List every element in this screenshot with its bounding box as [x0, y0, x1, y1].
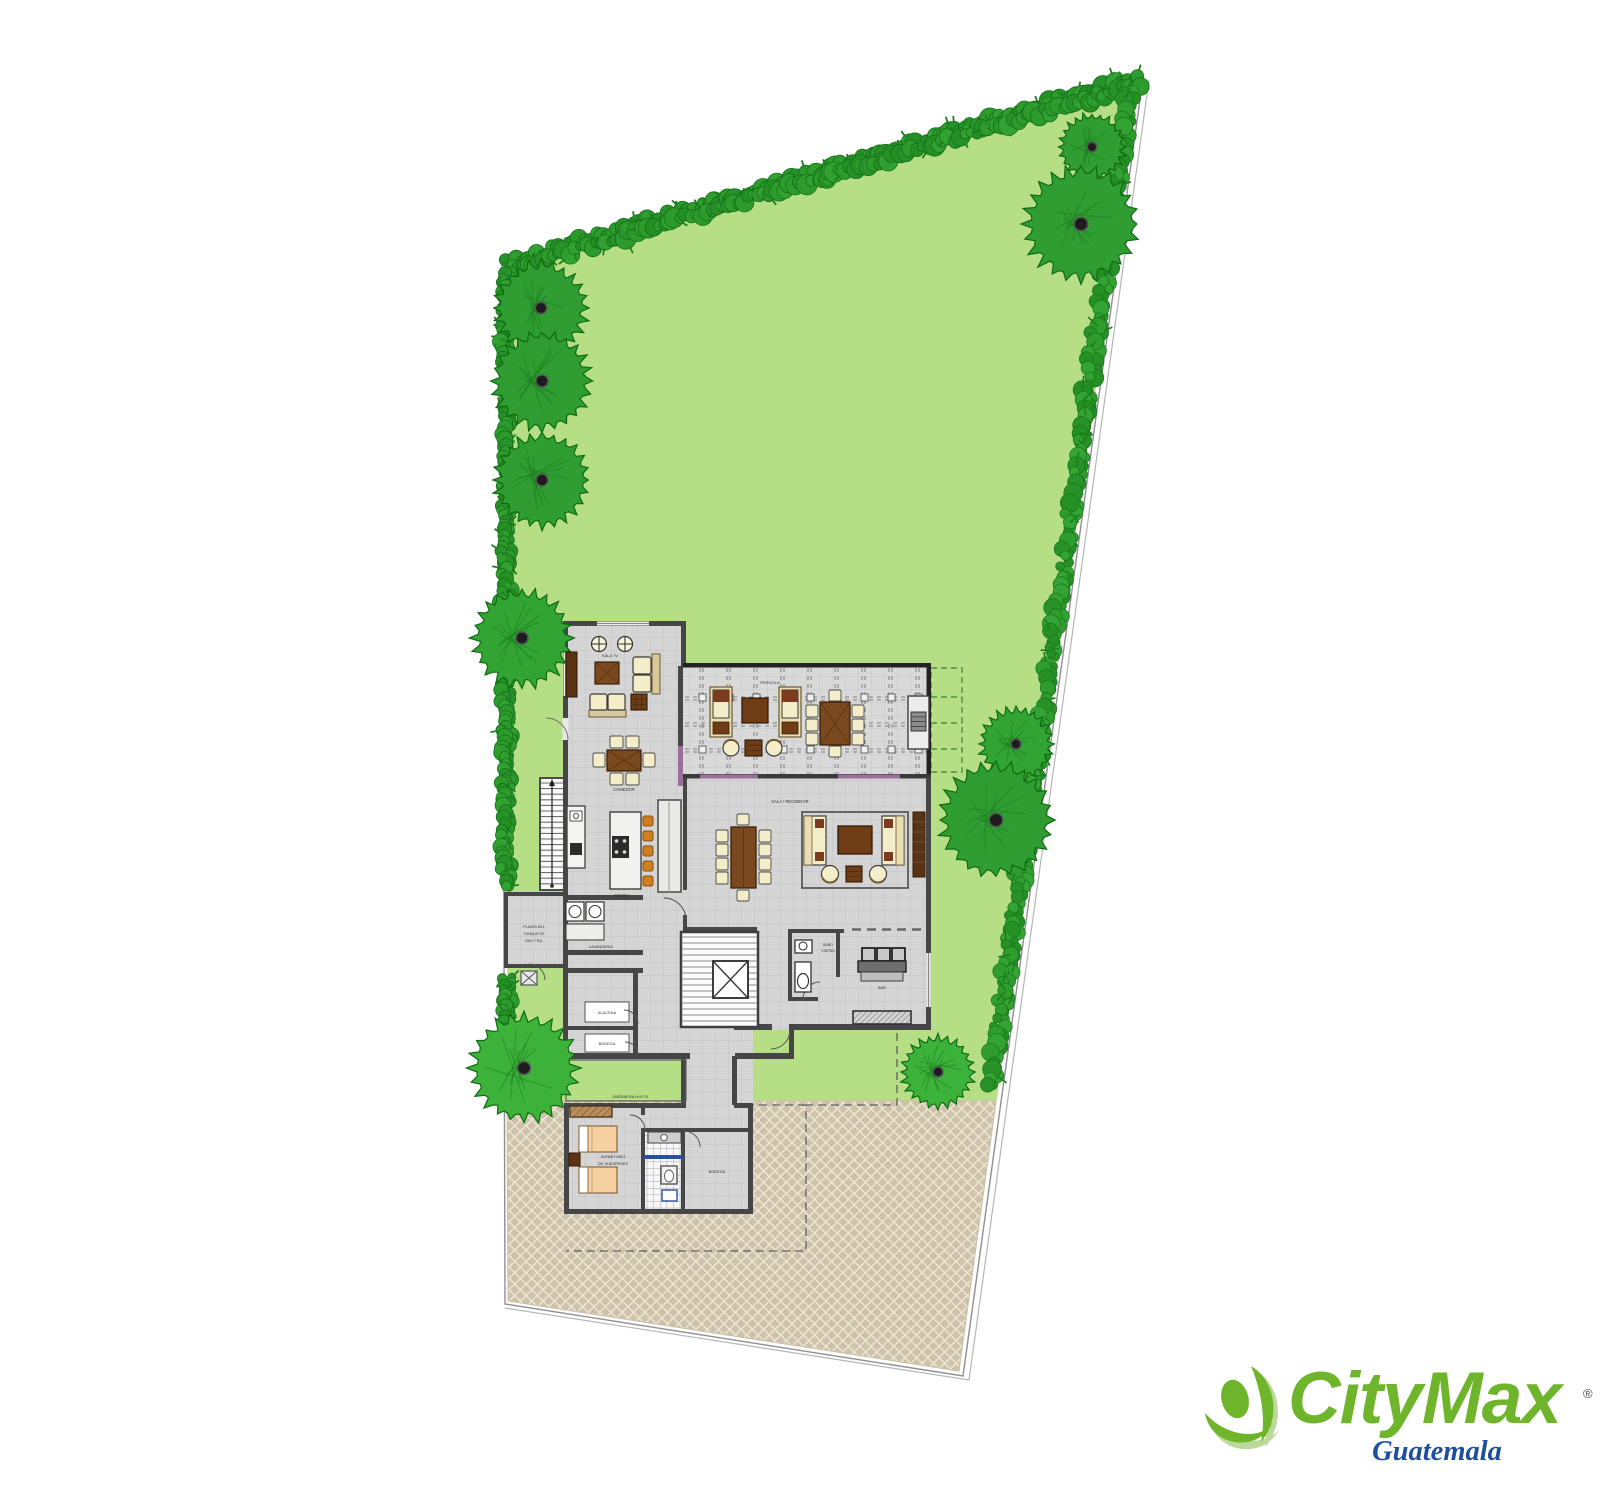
svg-text:SALA / RECIBIDOR: SALA / RECIBIDOR — [771, 799, 808, 804]
svg-text:Guatemala: Guatemala — [1372, 1436, 1502, 1467]
svg-text:JARDINERA H=0.75: JARDINERA H=0.75 — [612, 1094, 648, 1099]
svg-text:VISITAS: VISITAS — [821, 949, 835, 953]
svg-text:CityMax: CityMax — [1288, 1358, 1565, 1439]
svg-text:®: ® — [1583, 1386, 1593, 1401]
svg-text:DE HUESPEDES: DE HUESPEDES — [598, 1162, 628, 1166]
svg-text:BAÑO: BAÑO — [823, 942, 833, 947]
svg-text:GAS Y EQ.: GAS Y EQ. — [525, 939, 543, 943]
svg-text:BODEGA: BODEGA — [709, 1169, 726, 1174]
svg-text:ALACENA: ALACENA — [598, 1010, 617, 1015]
svg-text:BODEGA: BODEGA — [599, 1041, 616, 1046]
svg-text:DORMITORIO: DORMITORIO — [601, 1155, 626, 1159]
svg-text:COMEDOR: COMEDOR — [613, 787, 635, 792]
svg-text:TANQUE DE: TANQUE DE — [524, 932, 545, 936]
svg-text:PERGOLA: PERGOLA — [760, 680, 780, 685]
svg-text:LAVANDERIA: LAVANDERIA — [589, 944, 613, 949]
svg-text:PLANTA DEL: PLANTA DEL — [523, 925, 545, 929]
svg-text:SALA TV: SALA TV — [602, 653, 618, 658]
svg-text:COCINA: COCINA — [614, 893, 630, 898]
svg-text:BAR: BAR — [878, 985, 886, 990]
